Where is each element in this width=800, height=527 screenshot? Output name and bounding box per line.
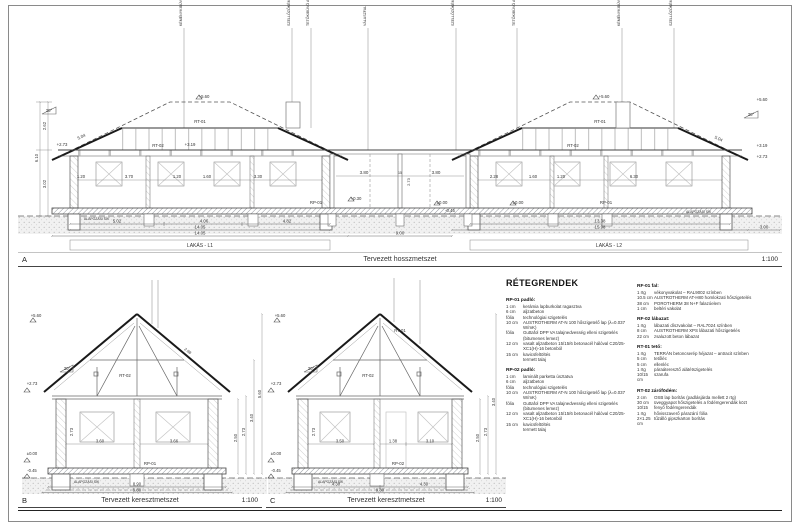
rp01-label: RP-01 [310,200,323,205]
house-left [52,102,348,208]
windows-right [496,162,692,186]
legend-block-title: RT-01 tető: [637,345,793,350]
dim-label: 4.30 [420,482,429,487]
legend-column-1: RP-01 padló:1 cmkerámia lapburkolat raga… [506,298,633,438]
annotation-label: TETŐKIBÚVÓ ABLAK [305,0,310,26]
dim-label: 9.00 [396,231,405,236]
annotation-leaders [184,28,674,150]
level-value: ±0.00 [27,451,38,456]
dim-label: 9.80 [133,488,142,493]
dim-label: 3.70 [125,174,134,179]
slope-length: 5.04 [77,132,87,140]
rt02-label: RT-02 [362,373,374,378]
level-value: -0.45 [271,468,281,473]
slope-angle: 30° [46,108,53,113]
legend-row-text: szarufa [654,372,793,383]
dim-label: 3.10 [426,439,435,444]
dim-label: 2.50 [233,433,238,442]
legend-row: 10 cmAUSTROTHERM AT-N 100 hőszigetelő la… [506,390,633,401]
title-bar-b: B Tervezett keresztmetszet 1:100 [18,494,262,508]
dim-label: 15.98 [595,225,607,230]
dim-label: 5.60 [257,389,262,398]
legend-row-text: vasalt aljzatbeton 15/15/6 betonacél hál… [523,341,633,352]
legend-block-title: RT-02 zárófödém: [637,389,793,394]
dim-label: 3.40 [491,397,496,406]
level-value: +5.60 [31,313,42,318]
section-c-drawing: RT-01 RT-02 30° RP-02 ALAPOZÁSI SÍK [268,272,506,494]
room-label: LAKÁS - L2 [596,242,622,249]
legend-block-title: RF-01 fal: [637,284,793,289]
section-b-drawing: RT-02 2.98 30° RP-01 ALAPOZÁSI SÍK [22,272,267,494]
dim-label: 6.10 [34,153,39,162]
sheet-bottom-rule [18,510,782,511]
legend-block: RF-02 lábazat:1 rtglábazati díszvakolat … [637,317,793,339]
dim-label: 3.60 [96,439,105,444]
legend-row: 10/15 cmszarufa [637,372,793,383]
level-value: +2.73 [57,142,68,147]
dim-label: 2.73 [311,427,316,436]
level-value: +2.73 [757,154,768,159]
legend-row: fóliaGuttafol DPP VA talajnedvesség elle… [506,330,633,341]
legend-row-text: tűzálló gipszkarton borítás [654,416,793,427]
legend-row-qty: 22 cm [637,334,654,339]
walls-floor: RP-02 ALAPOZÁSI SÍK [290,399,470,490]
dim-label: 3.40 [249,413,254,422]
levels: +5.60 +2.73 ±0.00 -0.45 [24,313,42,478]
rt02-label: RT-02 [119,373,131,378]
dim-label: 3.30 [254,174,263,179]
section-title: Tervezett keresztmetszet [266,497,506,504]
dim-label: 1.38 [389,439,398,444]
slope-angle: 30° [308,366,315,371]
legend-block: RT-01 tető:1 rtgTERRÁN betoncserép héjaz… [637,345,793,383]
level-value: ±0.00 [271,451,282,456]
slope-angle: 30° [64,366,71,371]
room-label: LAKÁS - L1 [187,242,213,249]
dim-label: 13.38 [595,219,607,224]
legend-row: 10 cmAUSTROTHERM AT-N 100 hőszigetelő la… [506,320,633,331]
rp02-label: RP-02 [392,461,405,466]
foundation-label: ALAPOZÁSI SÍK [686,210,712,214]
dim-label: 2.50 [475,433,480,442]
legend-row: termett talaj [506,357,633,362]
dim-label: 2.28 [490,174,499,179]
legend-block: RF-01 fal:1 rtgvékonyvakolat – RAL9002 s… [637,284,793,311]
annotation-label: VÁLASZFAL [363,6,367,26]
annotation-label: SZELLŐZŐKÉMÉNY [668,0,673,26]
legend-row-qty [506,427,523,432]
legend-column-2: RF-01 fal:1 rtgvékonyvakolat – RAL9002 s… [637,284,793,432]
dim-label: 2.73 [406,177,411,186]
section-title: Tervezett hosszmetszet [18,256,782,263]
legend-row: termett talaj [506,427,633,432]
level-value: +3.19 [757,143,768,148]
legend-row: fóliaGuttafol DPP VA talajnedvesség elle… [506,401,633,412]
annotation-label: SZELLŐZŐKÉMÉNY [450,0,455,26]
level-value: -0.45 [27,468,37,473]
level-value: +2.73 [271,381,282,386]
legend-row-text: AUSTROTHERM AT-N 100 hőszigetelő lap (λ=… [523,390,633,401]
dim-label: 4.82 [283,219,292,224]
legend-row-qty: 12 cm [506,341,523,352]
legend-row: 12 cmvasalt aljzatbeton 15/15/6 betonacé… [506,341,633,352]
dim-label: 2.73 [69,427,74,436]
legend-row-text: termett talaj [523,427,633,432]
legend-row-qty: 10 cm [506,390,523,401]
dim-label: 6.30 [630,174,639,179]
dim-label: 2.73 [483,427,488,436]
foundation-label: ALAPOZÁSI SÍK [74,480,100,484]
rp01-label: RP-01 [600,200,613,205]
legend-row-text: zsaluzott beton lábazat [654,334,793,339]
dim-label: 4.06 [200,219,209,224]
level-value: +5.60 [275,313,286,318]
dim-label: 15 [398,171,402,175]
levels: +5.60 +2.73 ±0.00 -0.45 [268,313,286,478]
section-a-drawing: KÉMÉNYKIBÚVÓ SZELLŐZŐKÉMÉNY TETŐKIBÚVÓ A… [18,6,782,252]
house-right [452,102,748,208]
legend-row-text: Guttafol DPP VA talajnedvesség elleni sz… [523,330,633,341]
annotation-label: TETŐKIBÚVÓ ABLAK [511,0,516,26]
foundation-label: ALAPOZÁSI SÍK [84,217,110,221]
dim-label: 3.00 [760,225,769,230]
level-value: -0.45 [445,208,455,213]
level-value: +2.73 [27,381,38,386]
legend-row-text: Guttafol DPP VA talajnedvesség elleni sz… [523,401,633,412]
legend-row-text: AUSTROTHERM AT-N 100 hőszigetelő lap (λ=… [523,320,633,331]
dim-label: 8.90 [133,482,142,487]
rt01-label: RT-01 [194,119,206,124]
slope-angle: 30° [748,112,755,117]
legend-row: 2×1.25 cmtűzálló gipszkarton borítás [637,416,793,427]
legend-block-title: RP-01 padló: [506,298,633,303]
dim-label: 3.80 [360,170,369,175]
annotation-label: KÉMÉNYKIBÚVÓ [178,0,183,26]
legend-row-text: termett talaj [523,357,633,362]
dim-label: 9.80 [376,488,385,493]
dim-label: 3.66 [170,439,179,444]
drawing-sheet: KÉMÉNYKIBÚVÓ SZELLŐZŐKÉMÉNY TETŐKIBÚVÓ A… [0,0,800,527]
dim-label: 2.73 [241,427,246,436]
rt02-label: RT-02 [567,143,579,148]
legend-row-qty: 10/15 cm [637,372,654,383]
dim-label: 4.30 [332,482,341,487]
legend-block: RT-02 zárófödém:2 cmOSB lap borítás (pad… [637,389,793,427]
dim-label: 1.20 [557,174,566,179]
legend-block: RP-01 padló:1 cmkerámia lapburkolat raga… [506,298,633,362]
left-dim-chain: 2.62 3.02 6.10 [34,102,52,216]
rt01-label: RT-01 [594,119,606,124]
legend-row: 12 cmvasalt aljzatbeton 15/15/6 betonacé… [506,411,633,422]
dim-label: 3.80 [432,170,441,175]
legend-row-qty: 1 cm [637,306,654,311]
right-dim-chain: 2.50 2.73 3.40 5.60 [233,314,262,474]
annotation-label: KÉMÉNYKIBÚVÓ [616,0,621,26]
legend-row-qty: fólia [506,330,523,341]
title-bar-a: A Tervezett hosszmetszet 1:100 [18,252,782,267]
legend-block-title: RF-02 lábazat: [637,317,793,322]
section-title: Tervezett keresztmetszet [18,497,262,504]
legend-row-qty: fólia [506,401,523,412]
legend-row-text: vasalt aljzatbeton 15/15/6 betonacél hál… [523,411,633,422]
dim-label: 3.02 [42,179,47,188]
rp01-label: RP-01 [144,461,157,466]
legend-row: 1 cmbeltéri vakolat [637,306,793,311]
dim-label: 1.20 [77,174,86,179]
right-dim-chain: 2.50 2.73 3.40 [475,314,496,474]
legend-row-qty [506,357,523,362]
legend-row-qty: 2×1.25 cm [637,416,654,427]
legend-row-qty: 10 cm [506,320,523,331]
dim-label: 2.62 [42,121,47,130]
dim-label: 14.05 [195,231,207,236]
roof: RT-02 2.98 30° [44,280,230,399]
legend-row-qty: 12 cm [506,411,523,422]
legend-block-title: RP-02 padló: [506,368,633,373]
legend-block: RP-02 padló:1 cmlaminált parketta úsztat… [506,368,633,432]
dim-label: 1.60 [203,174,212,179]
annotation-label: SZELLŐZŐKÉMÉNY [286,0,291,26]
slope-length: 5.04 [714,135,724,143]
dim-label: 3.50 [336,439,345,444]
annotation-labels: KÉMÉNYKIBÚVÓ SZELLŐZŐKÉMÉNY TETŐKIBÚVÓ A… [178,0,673,26]
legend-row: 22 cmzsaluzott beton lábazat [637,334,793,339]
level-value: +5.60 [757,97,768,102]
legend-row-text: beltéri vakolat [654,306,793,311]
title-bar-c: C Tervezett keresztmetszet 1:100 [266,494,506,508]
rt02-label: RT-02 [152,143,164,148]
legend-title: RÉTEGRENDEK [506,278,578,288]
level-value: +5.60 [599,94,610,99]
level-value: +3.19 [185,142,196,147]
dim-label: 1.20 [173,174,182,179]
legend: RÉTEGRENDEK RP-01 padló:1 cmkerámia lapb… [504,272,794,442]
roof: RT-01 RT-02 30° [288,278,472,399]
dim-label: 1.60 [529,174,538,179]
dim-label: 5.02 [113,219,122,224]
walls-floor: RP-01 ALAPOZÁSI SÍK [46,399,228,490]
rt01-label: RT-01 [394,328,406,333]
dim-label: 14.05 [195,225,207,230]
